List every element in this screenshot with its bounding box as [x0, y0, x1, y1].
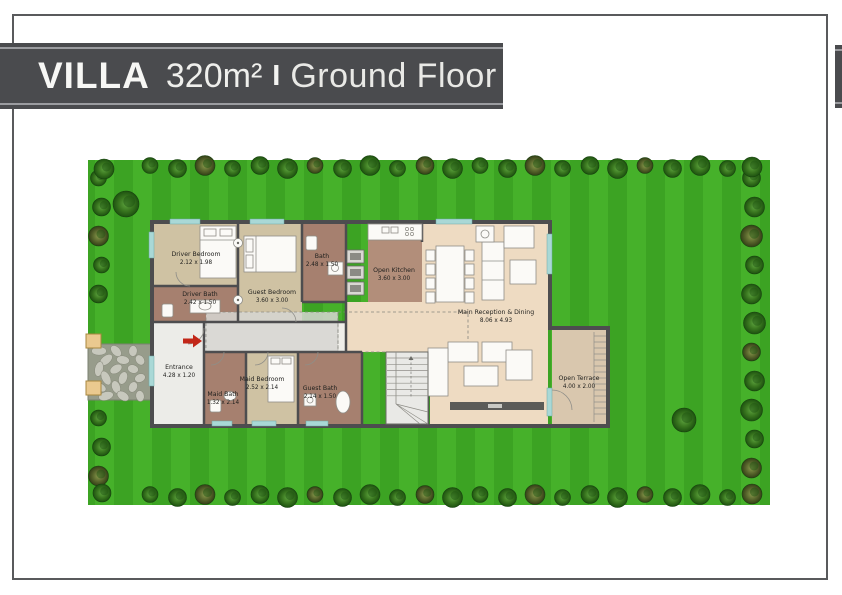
- dims-maid-bedroom: 2.52 x 2.14: [246, 385, 279, 391]
- floor-label: Ground Floor: [290, 57, 496, 96]
- dims-bath: 2.48 x 1.50: [306, 262, 339, 268]
- label-guest-bedroom: Guest Bedroom: [248, 289, 296, 296]
- floor-plan: Driver Bedroom 2.12 x 1.98 Driver Bath 2…: [85, 148, 775, 521]
- dims-guest-bedroom: 3.60 x 3.00: [256, 298, 289, 304]
- dims-open-terrace: 4.00 x 2.00: [563, 384, 596, 390]
- stone-path: [86, 334, 152, 403]
- dims-driver-bedroom: 2.12 x 1.98: [180, 260, 213, 266]
- label-guest-bath: Guest Bath: [303, 385, 338, 392]
- label-open-terrace: Open Terrace: [558, 375, 599, 382]
- label-driver-bedroom: Driver Bedroom: [172, 251, 221, 258]
- kitchen-counter: [368, 224, 422, 240]
- room-maid-bath: [204, 352, 246, 424]
- label-driver-bath: Driver Bath: [182, 291, 217, 298]
- stairs: [386, 352, 428, 424]
- dims-open-kitchen: 3.60 x 3.00: [378, 276, 411, 282]
- dims-driver-bath: 2.42 x 1.50: [184, 300, 217, 306]
- title-banner-right-stub: [835, 45, 842, 108]
- utility-appliances: [347, 250, 364, 295]
- label-bath: Bath: [315, 253, 329, 260]
- dims-guest-bath: 2.14 x 1.50: [304, 394, 337, 400]
- dims-maid-bath: 1.32 x 2.14: [207, 400, 240, 406]
- bed-guest: [244, 236, 296, 272]
- title-banner: VILLA 320m² I Ground Floor: [0, 43, 503, 109]
- dims-reception: 8.06 x 4.93: [480, 318, 513, 324]
- label-reception: Main Reception & Dining: [458, 309, 534, 316]
- area-label: 320m²: [166, 57, 262, 96]
- gate-post: [86, 334, 101, 348]
- gate-post: [86, 381, 101, 395]
- label-maid-bedroom: Maid Bedroom: [240, 376, 285, 383]
- label-maid-bath: Maid Bath: [207, 391, 238, 398]
- villa-title: VILLA: [38, 55, 150, 97]
- label-open-kitchen: Open Kitchen: [373, 267, 415, 274]
- dining-table: [426, 246, 474, 303]
- label-entrance: Entrance: [165, 364, 193, 371]
- dims-entrance: 4.28 x 1.20: [163, 373, 196, 379]
- title-separator: I: [272, 60, 280, 93]
- canopy-zone: [206, 312, 338, 352]
